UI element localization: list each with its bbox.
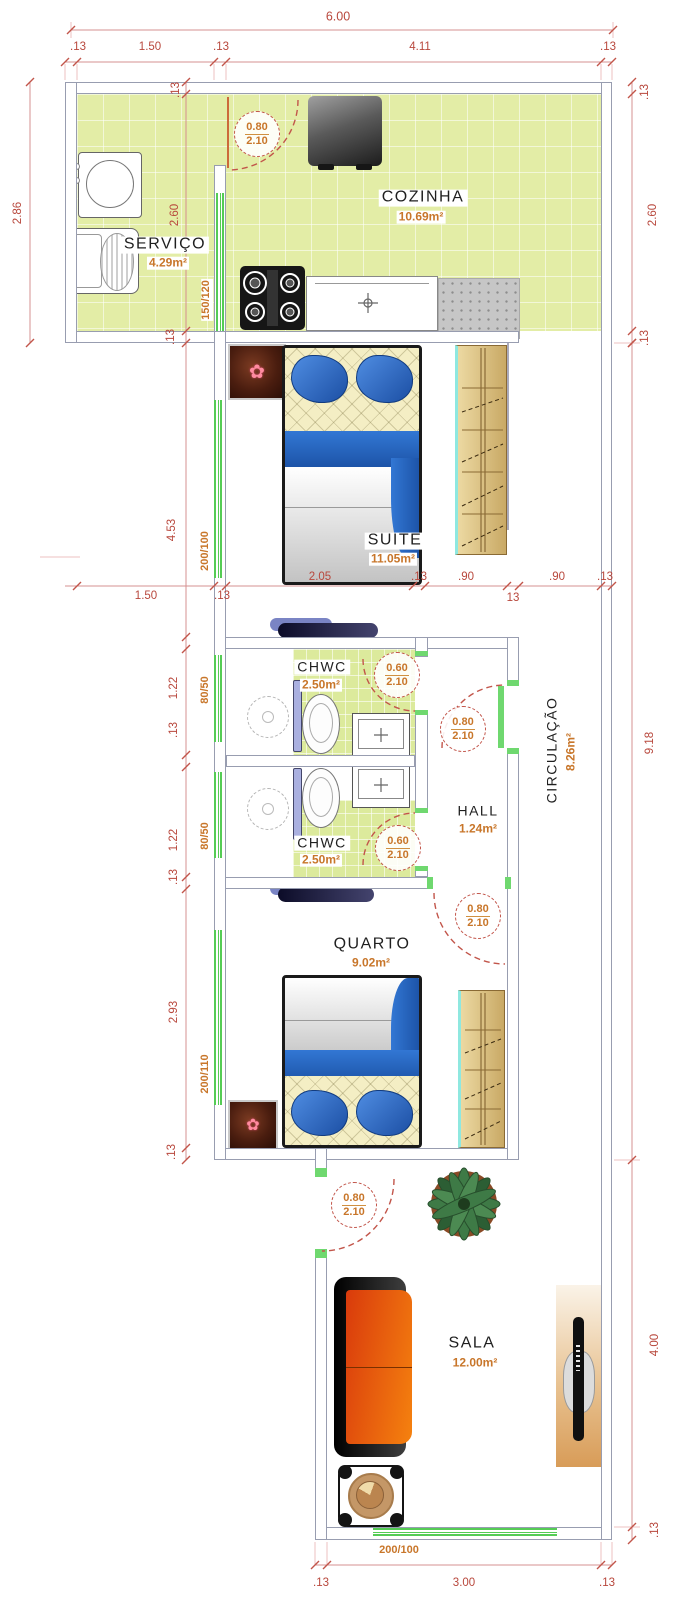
dim-right: 4.00 [649, 1334, 661, 1356]
label-quarto: QUARTO [331, 937, 414, 954]
door-tag-chwc1: 0.60 2.10 [374, 652, 420, 698]
door-tag-chwc2: 0.60 2.10 [375, 825, 421, 871]
dim-middle: 2.05 [309, 571, 331, 583]
area-sala: 12.00m² [451, 1357, 500, 1370]
door-swing-arcs [228, 100, 505, 1251]
dimension-lines [30, 30, 632, 1565]
dim-left: 2.93 [168, 1001, 180, 1023]
area-hall: 1.24m² [457, 823, 499, 836]
window-label-chwc1: 80/50 [200, 675, 212, 705]
door-height: 2.10 [387, 849, 408, 862]
dim-middle: .13 [411, 571, 427, 583]
dim-left: 1.22 [168, 829, 180, 851]
dim-right: 9.18 [644, 732, 656, 754]
dim-top: 1.50 [139, 41, 161, 53]
label-chwc1: CHWC [294, 660, 350, 675]
dim-middle: 13 [507, 592, 520, 604]
dim-right: .13 [639, 84, 651, 100]
dim-top: .13 [213, 41, 229, 53]
area-servico: 4.29m² [147, 257, 189, 270]
window-label-servico-cozinha: 150/120 [201, 279, 213, 321]
area-suite: 11.05m² [369, 553, 417, 566]
dim-left: .13 [165, 329, 177, 345]
dim-top: .13 [70, 41, 86, 53]
area-cozinha: 10.69m² [397, 211, 446, 224]
dim-right: .13 [639, 330, 651, 346]
door-tag-quarto: 0.80 2.10 [455, 893, 501, 939]
door-height: 2.10 [452, 730, 473, 743]
door-height: 2.10 [246, 135, 267, 148]
dim-left: 2.86 [12, 202, 24, 224]
dim-middle: .90 [458, 571, 474, 583]
dim-right: .13 [649, 1522, 661, 1538]
dim-middle: .13 [597, 571, 613, 583]
dim-middle: .13 [214, 590, 230, 602]
label-circulacao: CIRCULAÇÃO [545, 694, 560, 807]
window-label-sala: 200/100 [378, 1545, 420, 1557]
window-label-suite: 200/100 [200, 530, 212, 572]
area-chwc2: 2.50m² [300, 854, 342, 867]
door-height: 2.10 [467, 917, 488, 930]
label-servico: SERVIÇO [121, 237, 209, 254]
door-width: 0.80 [451, 716, 474, 730]
dim-left: 1.22 [168, 677, 180, 699]
label-sala: SALA [446, 1336, 499, 1353]
dim-bottom: .13 [313, 1577, 329, 1589]
door-width: 0.80 [466, 903, 489, 917]
dim-bottom: 3.00 [453, 1577, 475, 1589]
dim-top: 4.11 [409, 41, 431, 53]
window-label-chwc2: 80/50 [200, 821, 212, 851]
area-circulacao: 8.26m² [565, 731, 578, 773]
dim-left: .13 [166, 1144, 178, 1160]
dim-left: .13 [170, 82, 182, 98]
dim-right: 2.60 [647, 204, 659, 226]
dim-middle: .90 [549, 571, 565, 583]
label-chwc2: CHWC [294, 836, 350, 851]
door-height: 2.10 [343, 1206, 364, 1219]
dim-top: .13 [600, 41, 616, 53]
door-width: 0.60 [385, 662, 408, 676]
door-width: 0.80 [342, 1192, 365, 1206]
door-width: 0.80 [245, 121, 268, 135]
door-tag-sala: 0.80 2.10 [331, 1182, 377, 1228]
dim-left: .13 [168, 722, 180, 738]
label-cozinha: COZINHA [379, 190, 468, 207]
dimension-and-door-overlay [0, 0, 697, 1600]
dim-total-width: 6.00 [326, 10, 350, 23]
label-suite: SUITE [365, 533, 426, 550]
dim-bottom: .13 [599, 1577, 615, 1589]
door-tag-hall: 0.80 2.10 [440, 706, 486, 752]
dim-middle: 1.50 [135, 590, 157, 602]
door-height: 2.10 [386, 676, 407, 689]
floor-plan: ✿ ✿ [0, 0, 697, 1600]
dim-left: .13 [168, 869, 180, 885]
dim-left: 2.60 [169, 204, 181, 226]
area-quarto: 9.02m² [350, 957, 392, 970]
label-hall: HALL [454, 804, 501, 819]
door-width: 0.60 [386, 835, 409, 849]
area-chwc1: 2.50m² [300, 679, 342, 692]
dim-left: 4.53 [166, 519, 178, 541]
door-tag-kitchen: 0.80 2.10 [234, 111, 280, 157]
window-label-quarto: 200/110 [200, 1053, 212, 1094]
